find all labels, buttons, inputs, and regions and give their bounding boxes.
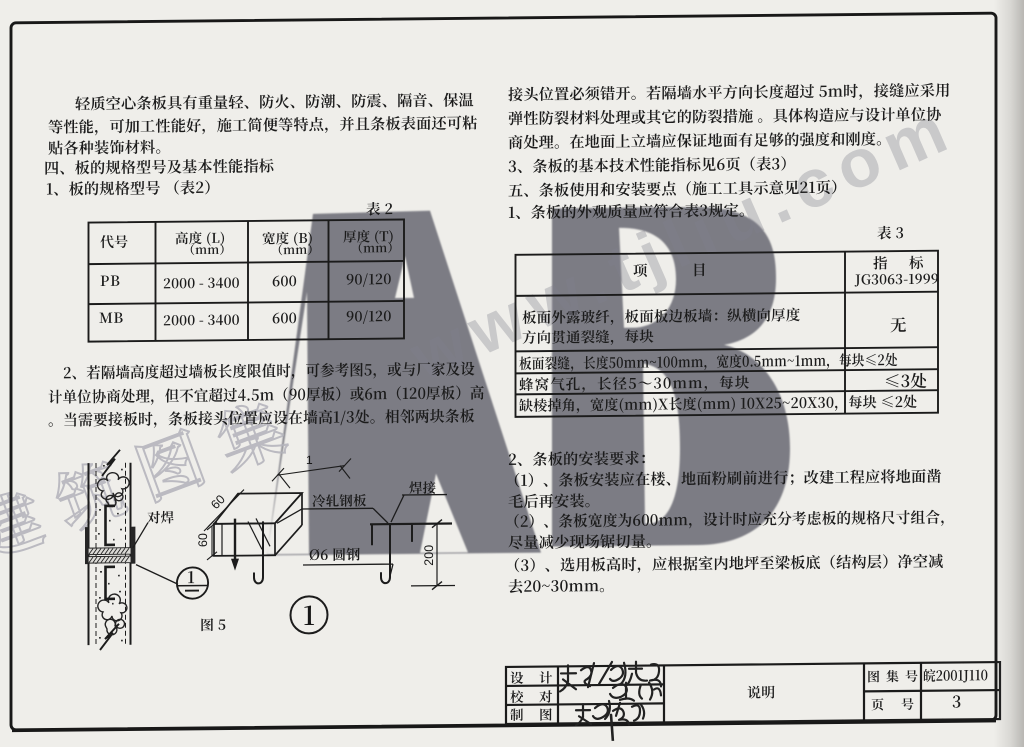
svg-text:60: 60 (196, 533, 210, 547)
svg-text:1: 1 (187, 565, 194, 588)
svg-text:1: 1 (306, 453, 313, 467)
svg-text:1: 1 (303, 596, 315, 633)
svg-text:200: 200 (422, 545, 436, 566)
